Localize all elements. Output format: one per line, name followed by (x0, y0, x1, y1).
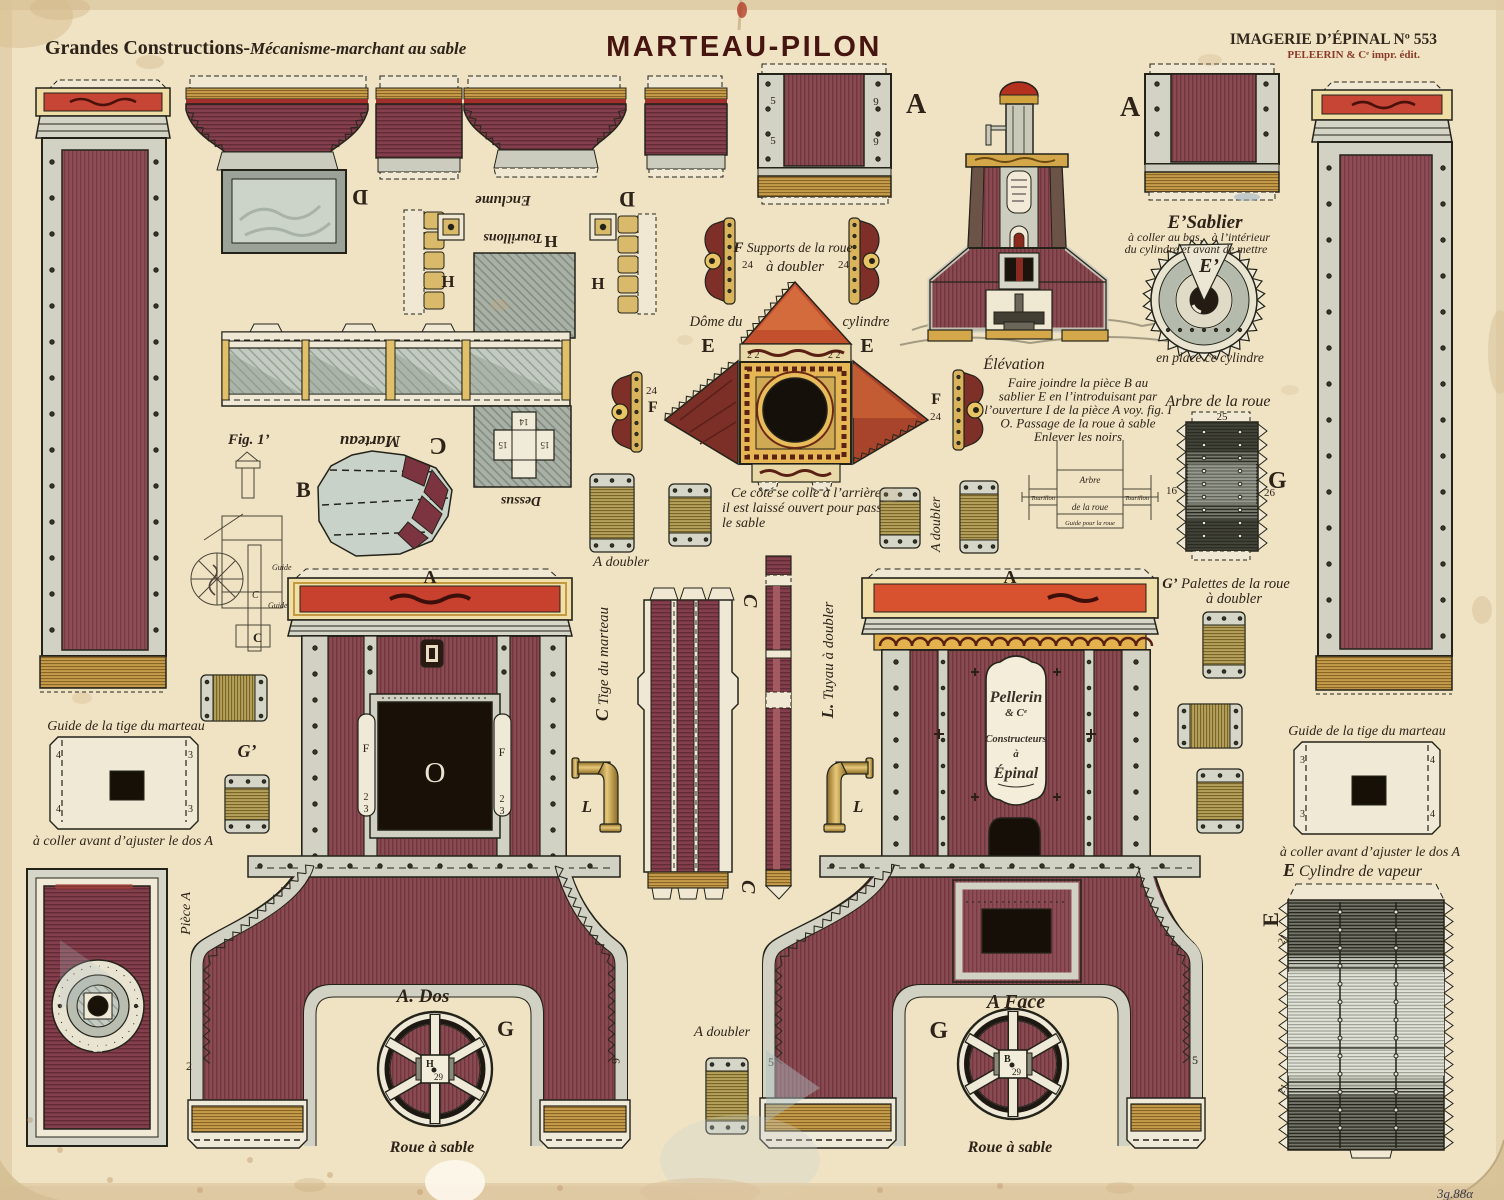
svg-text:3: 3 (1300, 755, 1305, 766)
svg-text:Constructeurs: Constructeurs (985, 734, 1046, 745)
svg-text:à coller avant d’ajuster le d: à coller avant d’ajuster le dos A (1280, 845, 1461, 860)
svg-text:A doubler: A doubler (929, 496, 944, 553)
svg-text:Arbre de la roue: Arbre de la roue (1164, 393, 1270, 410)
svg-text:& Cᵉ: & Cᵉ (1005, 707, 1028, 719)
svg-text:24: 24 (838, 259, 850, 271)
svg-text:14: 14 (519, 417, 529, 427)
svg-text:2: 2 (186, 1059, 192, 1073)
svg-text:Guide de la tige du marteau: Guide de la tige du marteau (47, 719, 204, 734)
svg-text:C: C (429, 432, 446, 458)
svg-text:2: 2 (364, 792, 369, 803)
svg-text:F Supports de la roue: F Supports de la roue (732, 240, 852, 256)
svg-text:L: L (581, 797, 592, 816)
svg-text:L: L (852, 797, 863, 816)
svg-text:5: 5 (1192, 1053, 1198, 1067)
svg-text:cylindre: cylindre (843, 314, 891, 330)
svg-text:Ce côté se colle à l’arrière: Ce côté se colle à l’arrière (731, 486, 881, 501)
svg-text:3: 3 (1300, 809, 1305, 820)
svg-text:G’ Palettes de la roue: G’ Palettes de la roue (1162, 576, 1290, 592)
svg-text:F: F (499, 745, 506, 759)
svg-text:3: 3 (188, 750, 193, 761)
svg-text:A: A (1120, 92, 1141, 123)
svg-text:G: G (1268, 468, 1287, 494)
svg-text:Épinal: Épinal (993, 763, 1039, 782)
svg-text:4: 4 (56, 750, 61, 761)
svg-text:PELEERIN & Cᵉ impr. édit.: PELEERIN & Cᵉ impr. édit. (1287, 49, 1420, 61)
svg-text:à coller avant d’ajuster le do: à coller avant d’ajuster le dos A (33, 834, 214, 849)
svg-text:5: 5 (770, 95, 776, 107)
svg-text:E Cylindre de vapeur: E Cylindre de vapeur (1282, 860, 1423, 880)
svg-text:A doubler: A doubler (693, 1024, 751, 1040)
svg-text:B: B (296, 477, 311, 502)
svg-text:Guide pour la roue: Guide pour la roue (1065, 520, 1115, 527)
svg-text:E’: E’ (1198, 255, 1219, 277)
svg-text:Dessus: Dessus (500, 493, 542, 508)
svg-text:Guide: Guide (272, 563, 292, 572)
svg-text:E: E (860, 335, 873, 357)
svg-text:D: D (352, 185, 368, 210)
svg-text:C: C (253, 630, 262, 645)
svg-text:4: 4 (1430, 809, 1435, 820)
svg-text:3: 3 (500, 806, 505, 817)
svg-text:25: 25 (1217, 411, 1229, 423)
svg-text:Tourillon: Tourillon (1125, 495, 1149, 502)
svg-text:2: 2 (500, 794, 505, 805)
svg-text:H: H (544, 232, 557, 251)
svg-text:24: 24 (646, 385, 658, 397)
svg-text:24: 24 (930, 411, 942, 423)
svg-text:à doubler: à doubler (766, 259, 824, 275)
svg-text:Enlever les noirs: Enlever les noirs (1033, 429, 1122, 444)
svg-text:il est laissé ouvert pour pass: il est laissé ouvert pour passer (722, 501, 894, 516)
svg-text:L. Tuyau à doubler: L. Tuyau à doubler (818, 601, 837, 719)
svg-text:6: 6 (873, 135, 879, 147)
svg-text:A. Dos: A. Dos (396, 986, 450, 1007)
svg-text:de la roue: de la roue (1072, 502, 1108, 512)
svg-text:2 2: 2 2 (747, 350, 760, 361)
svg-text:Dôme du: Dôme du (689, 314, 743, 330)
svg-text:Pellerin: Pellerin (989, 689, 1043, 706)
svg-text:Roue à sable: Roue à sable (389, 1139, 474, 1156)
svg-text:H: H (591, 274, 604, 293)
svg-text:2 2: 2 2 (828, 350, 841, 361)
svg-text:G’: G’ (238, 741, 257, 761)
svg-text:G: G (929, 1018, 948, 1044)
svg-text:A: A (906, 89, 927, 120)
svg-text:15: 15 (498, 440, 508, 450)
svg-text:29: 29 (1012, 1067, 1022, 1077)
svg-text:Roue à sable: Roue à sable (967, 1139, 1052, 1156)
svg-text:Guide: Guide (268, 601, 288, 610)
svg-text:MARTEAU-PILON: MARTEAU-PILON (606, 31, 882, 63)
svg-text:24: 24 (742, 259, 754, 271)
svg-text:A Face: A Face (985, 991, 1045, 1013)
svg-text:du cylindre et avant de mettre: du cylindre et avant de mettre (1125, 242, 1268, 256)
svg-text:3: 3 (364, 804, 369, 815)
svg-text:le sable: le sable (722, 516, 765, 531)
svg-text:E: E (1258, 912, 1283, 927)
svg-text:4: 4 (56, 804, 61, 815)
svg-text:Tourillon: Tourillon (1031, 495, 1055, 502)
svg-text:E: E (701, 335, 714, 357)
svg-text:IMAGERIE D’ÉPINAL Nº 553: IMAGERIE D’ÉPINAL Nº 553 (1230, 31, 1437, 48)
svg-text:B: B (1004, 1054, 1011, 1065)
svg-text:Arbre: Arbre (1079, 475, 1101, 485)
svg-text:H: H (441, 272, 454, 291)
svg-text:3: 3 (188, 804, 193, 815)
svg-text:23: 23 (93, 1044, 103, 1055)
svg-text:G: G (497, 1016, 514, 1041)
svg-text:29: 29 (434, 1072, 444, 1082)
svg-text:Guide de la tige du marteau: Guide de la tige du marteau (1288, 724, 1445, 739)
svg-text:4: 4 (1430, 755, 1435, 766)
svg-text:A doubler: A doubler (592, 554, 650, 570)
svg-text:5: 5 (770, 135, 776, 147)
svg-text:C: C (739, 594, 761, 608)
svg-text:D: D (619, 187, 635, 212)
svg-text:Tourillons: Tourillons (483, 230, 543, 245)
svg-text:C: C (737, 880, 759, 894)
svg-text:16: 16 (1166, 485, 1178, 497)
svg-text:C: C (252, 590, 259, 601)
svg-text:F: F (648, 399, 658, 416)
svg-text:Pièce A: Pièce A (179, 892, 194, 936)
svg-text:F: F (931, 391, 941, 408)
svg-text:3g.88α: 3g.88α (1436, 1186, 1474, 1200)
svg-text:Élévation: Élévation (982, 354, 1044, 373)
svg-text:Marteau: Marteau (340, 432, 401, 451)
svg-text:Enclume: Enclume (475, 192, 532, 208)
svg-text:6: 6 (609, 1058, 623, 1064)
svg-text:à: à (1013, 748, 1019, 760)
svg-text:O: O (425, 757, 446, 789)
svg-text:à doubler: à doubler (1206, 591, 1262, 607)
svg-text:Fig. 1’: Fig. 1’ (227, 432, 270, 448)
svg-text:A: A (1004, 567, 1017, 587)
svg-text:en place ce cylindre: en place ce cylindre (1156, 350, 1264, 365)
svg-text:A: A (424, 567, 437, 587)
svg-text:Grandes Constructions-Mécanism: Grandes Constructions-Mécanisme-marchant… (45, 37, 467, 59)
svg-text:15: 15 (540, 440, 550, 450)
svg-text:F: F (363, 741, 370, 755)
svg-text:6: 6 (873, 95, 879, 107)
